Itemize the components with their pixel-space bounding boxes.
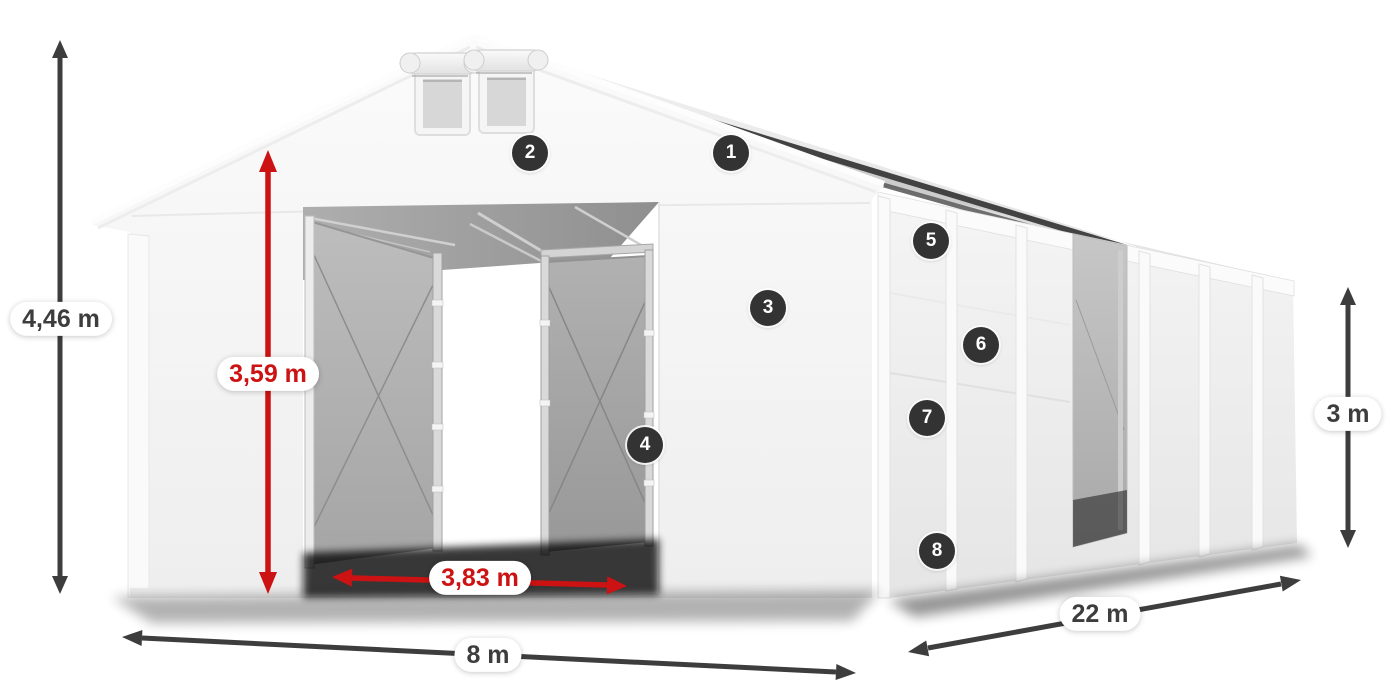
part-marker-6[interactable]: 6: [963, 327, 999, 363]
label-wall-height: 3 m: [1314, 397, 1381, 431]
label-length: 22 m: [1060, 597, 1141, 631]
part-marker-8[interactable]: 8: [919, 533, 955, 569]
label-door-height: 3,59 m: [217, 357, 319, 391]
label-total-height: 4,46 m: [10, 302, 112, 336]
part-marker-1[interactable]: 1: [713, 135, 749, 171]
part-marker-5[interactable]: 5: [913, 223, 949, 259]
label-door-width: 3,83 m: [429, 561, 531, 595]
tent-illustration: [0, 0, 1400, 700]
label-width: 8 m: [454, 638, 521, 672]
door-opening: [303, 202, 659, 598]
part-marker-7[interactable]: 7: [909, 400, 945, 436]
part-marker-4[interactable]: 4: [627, 427, 663, 463]
tent-dimension-diagram: 1 2 3 4 5 6 7 8 4,46 m 3,59 m 3,83 m 8 m…: [0, 0, 1400, 700]
part-marker-2[interactable]: 2: [512, 135, 548, 171]
part-marker-3[interactable]: 3: [750, 290, 786, 326]
sliding-door-right: [541, 244, 653, 552]
side-entrance-opening: [1073, 234, 1127, 547]
sliding-door-left: [309, 221, 437, 565]
